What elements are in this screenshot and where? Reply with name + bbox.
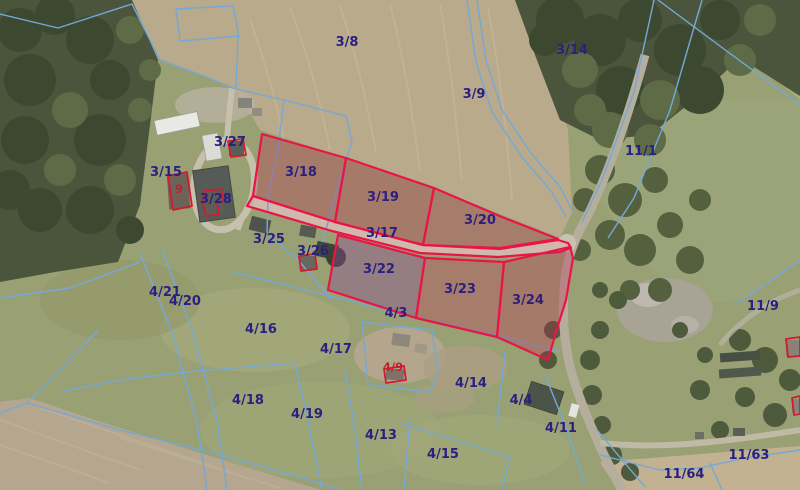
map-texture <box>744 4 776 36</box>
parcel-label-3-28: 3/28 <box>200 192 232 207</box>
map-texture <box>591 321 609 339</box>
parcel-label-3-24: 3/24 <box>512 293 544 308</box>
map-texture <box>640 80 680 120</box>
parcel-label-3-19: 3/19 <box>367 190 399 205</box>
map-texture <box>90 60 130 100</box>
map-texture <box>609 291 627 309</box>
parcel-label-4-3: 4/3 <box>385 306 408 321</box>
map-texture <box>676 246 704 274</box>
map-texture <box>391 333 410 347</box>
map-texture <box>690 380 710 400</box>
parcel-label-4-4: 4/4 <box>510 393 533 408</box>
map-texture <box>1 116 49 164</box>
map-texture <box>574 94 606 126</box>
map-texture <box>52 92 88 128</box>
map-texture <box>672 322 688 338</box>
parcel-label-4-20: 4/20 <box>169 294 201 309</box>
parcel-label-3-18: 3/18 <box>285 165 317 180</box>
map-texture <box>618 0 662 42</box>
map-texture <box>695 432 704 439</box>
parcel-label-4-11: 4/11 <box>545 421 577 436</box>
parcel-label-4-16: 4/16 <box>245 322 277 337</box>
map-texture <box>689 189 711 211</box>
map-texture <box>390 415 570 485</box>
parcel-label-4-15: 4/15 <box>427 447 459 462</box>
parcel-label-3-26: 3/26 <box>297 244 329 259</box>
parcel-label-11-63: 11/63 <box>729 448 770 463</box>
parcel-label-3-15: 3/15 <box>150 165 182 180</box>
parcel-label-3-14: 3/14 <box>556 43 588 58</box>
map-texture <box>676 66 724 114</box>
map-texture <box>733 428 745 436</box>
parcel-label-3-8: 3/8 <box>336 35 359 50</box>
map-texture <box>414 343 427 354</box>
parcel-label-4-13: 4/13 <box>365 428 397 443</box>
parcel-label-3-27: 3/27 <box>214 135 246 150</box>
map-texture <box>624 234 656 266</box>
map-texture <box>642 167 668 193</box>
map-texture <box>657 212 683 238</box>
map-texture <box>44 154 76 186</box>
parcel-label-3-17: 3/17 <box>366 226 398 241</box>
parcel-label-4-17: 4/17 <box>320 342 352 357</box>
map-texture <box>697 347 713 363</box>
building-label-9: 9 <box>175 182 183 196</box>
map-texture <box>592 282 608 298</box>
map-texture <box>238 98 252 108</box>
map-texture <box>116 216 144 244</box>
parcel-label-11-9: 11/9 <box>747 299 779 314</box>
parcel-label-3-23: 3/23 <box>444 282 476 297</box>
map-texture <box>763 403 787 427</box>
map-texture <box>139 59 161 81</box>
parcel-label-11-1: 11/1 <box>625 144 657 159</box>
map-texture <box>735 387 755 407</box>
parcel-label-3-22: 3/22 <box>363 262 395 277</box>
parcel-label-11-64: 11/64 <box>664 467 705 482</box>
parcel-label-4-14: 4/14 <box>455 376 487 391</box>
parcel-label-4-18: 4/18 <box>232 393 264 408</box>
parcel-label-4-19: 4/19 <box>291 407 323 422</box>
map-view[interactable]: 3/83/143/911/13/273/153/283/183/193/203/… <box>0 0 800 490</box>
parcel-label-3-25: 3/25 <box>253 232 285 247</box>
map-texture <box>621 463 639 481</box>
map-texture <box>700 0 740 40</box>
map-texture <box>252 108 262 116</box>
parcel-label-3-9: 3/9 <box>463 87 486 102</box>
map-texture <box>711 421 729 439</box>
map-texture <box>128 98 152 122</box>
map-texture <box>4 54 56 106</box>
map-texture <box>104 164 136 196</box>
parcel-label-3-20: 3/20 <box>464 213 496 228</box>
building-label-4-9: 4/9 <box>383 360 403 374</box>
map-texture <box>580 350 600 370</box>
map-texture <box>779 369 800 391</box>
map-texture <box>66 186 114 234</box>
map-texture <box>648 278 672 302</box>
